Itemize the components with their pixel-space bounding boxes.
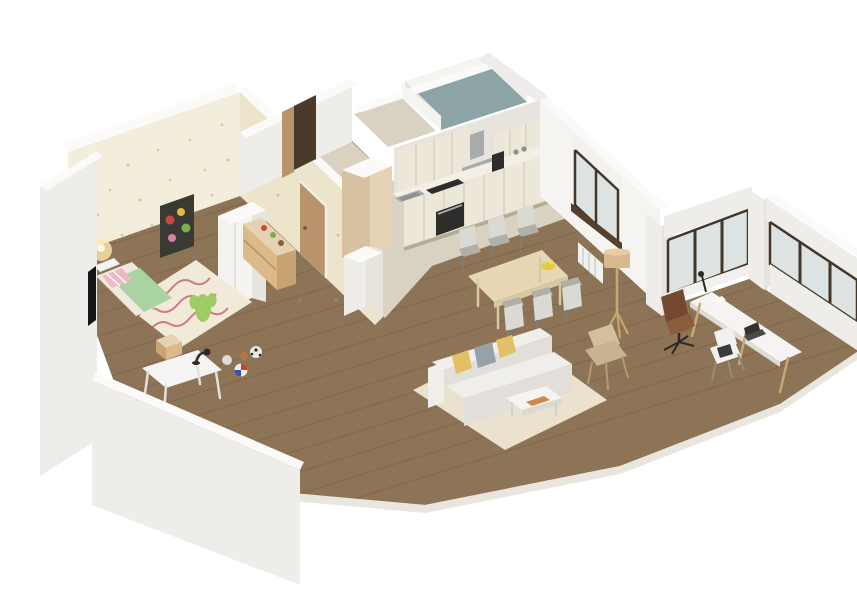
- poster-art-green: [182, 224, 191, 233]
- wallpaper-dot: [169, 179, 172, 182]
- wallpaper-dot: [109, 189, 112, 192]
- cactus-arm: [208, 293, 217, 307]
- hall-door-leaf: [282, 106, 294, 178]
- pillar2-front: [748, 188, 764, 290]
- dresser-toy: [278, 240, 284, 246]
- tv-on-wall-edge: [88, 266, 96, 326]
- wallpaper-dot: [221, 124, 224, 127]
- wallpaper-dot: [211, 194, 214, 197]
- wallpaper-dot: [204, 169, 207, 172]
- floor-plan-stage: [0, 0, 857, 600]
- tall-cabinet-block: [342, 158, 392, 258]
- lamp-head: [204, 349, 211, 356]
- poster-art-pink: [168, 234, 176, 242]
- soccer-ball-patch: [259, 354, 262, 357]
- wallpaper-dot: [139, 199, 142, 202]
- door-handle: [303, 226, 307, 230]
- white-ball: [222, 355, 232, 365]
- wallpaper-dot: [277, 194, 280, 197]
- chair-back: [533, 293, 553, 321]
- wallpaper-dot: [151, 224, 154, 227]
- wallpaper-dot: [157, 149, 160, 152]
- cactus-arm: [190, 295, 199, 309]
- dresser-toy: [270, 232, 276, 238]
- peninsula-pillar: [344, 246, 382, 316]
- range-hood-chimney: [470, 130, 484, 160]
- poster-art-yellow: [177, 208, 185, 216]
- lamp-shade-top: [604, 249, 630, 256]
- wallpaper-dot: [121, 234, 124, 237]
- wall-lamp: [97, 244, 105, 252]
- chair-back: [562, 283, 582, 311]
- counter-jar: [521, 146, 526, 151]
- lamp-base: [192, 361, 200, 365]
- floor-plan-render: [0, 0, 857, 600]
- lamp-head: [698, 271, 704, 277]
- wallpaper-dot: [337, 234, 340, 237]
- counter-jar: [513, 149, 518, 154]
- brown-ball: [240, 352, 248, 360]
- soccer-ball-patch: [254, 348, 257, 351]
- wallpaper-dot: [227, 159, 230, 162]
- fruit: [543, 261, 547, 265]
- wallpaper-dot: [97, 214, 100, 217]
- fruit: [549, 260, 553, 264]
- wallpaper-dot: [189, 139, 192, 142]
- dresser-toy: [261, 225, 267, 231]
- chair-back: [504, 303, 524, 331]
- wallpaper-dot: [127, 164, 130, 167]
- sofa-armrest: [428, 362, 444, 408]
- hall-doorway-opening: [294, 95, 316, 170]
- poster-art-red: [166, 216, 175, 225]
- wallpaper-dot: [299, 299, 302, 302]
- beach-ball: [235, 364, 248, 377]
- dresser-side: [277, 250, 296, 290]
- soccer-ball-patch: [251, 353, 254, 356]
- pillar1-front: [646, 214, 662, 316]
- soccer-ball: [250, 346, 262, 358]
- wallpaper-dot: [335, 299, 338, 302]
